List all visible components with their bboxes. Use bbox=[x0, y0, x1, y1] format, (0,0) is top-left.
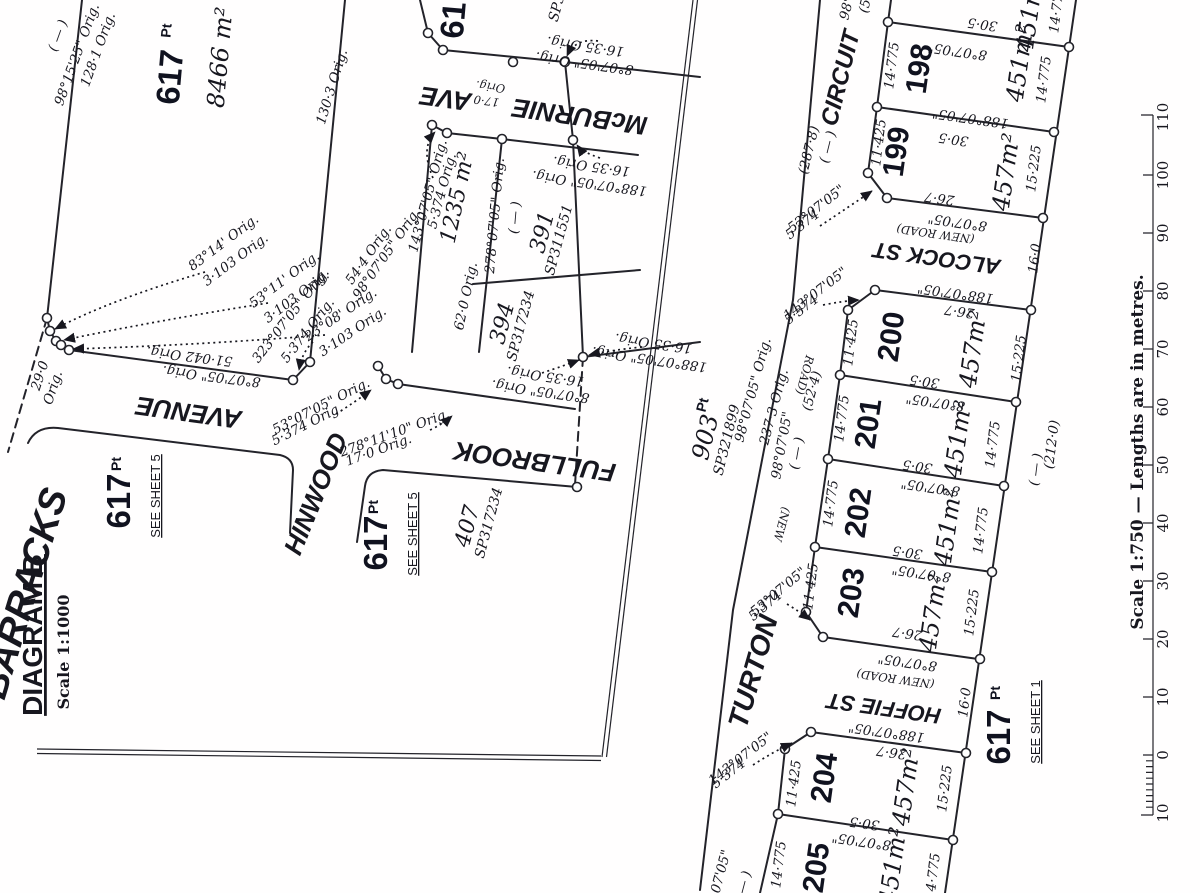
boundary-corner bbox=[976, 655, 985, 664]
width-30-5: 30·5 bbox=[966, 14, 998, 34]
lot-200-area: 457m² bbox=[954, 308, 993, 390]
scale-tick-10b: 10 bbox=[1154, 803, 1172, 822]
lot-203-side-east: 15·225 bbox=[961, 588, 983, 637]
width-30-5: 30·5 bbox=[908, 371, 940, 391]
boundary-corner bbox=[509, 58, 518, 67]
scale-bar-labels: Scale 1:750 — Lengths are in metres. 110… bbox=[1128, 103, 1172, 823]
lot-617-right-number: 617 bbox=[980, 709, 1017, 764]
dist-62-0: 62·0 Orig. bbox=[451, 261, 481, 332]
boundary-corner bbox=[824, 455, 833, 464]
leader-arrow bbox=[64, 303, 268, 340]
scale-tick-60: 60 bbox=[1154, 397, 1172, 416]
bearing-278-07-05-orig: 278°07'05" Orig. bbox=[482, 157, 508, 275]
lot-203-number: 203 bbox=[832, 566, 872, 620]
width-26-7: 26·7 bbox=[923, 188, 956, 208]
lot-200-number: 200 bbox=[872, 310, 912, 364]
boundary-corner bbox=[807, 728, 816, 737]
plan-number-fragment: SP3 bbox=[546, 0, 569, 24]
blank-dim: ( — ) bbox=[731, 869, 755, 893]
lot-202-area: 451m² bbox=[929, 486, 968, 568]
boundary-corner bbox=[46, 327, 55, 336]
lot-617-right-pt: Pt bbox=[987, 686, 1003, 700]
boundary-corner bbox=[443, 129, 452, 138]
boundary-corner bbox=[569, 136, 578, 145]
lot-200-side-east: 15·225 bbox=[1008, 334, 1030, 383]
lot-617a-pt: Pt bbox=[157, 23, 174, 39]
lot-205-number: 205 bbox=[797, 841, 837, 893]
boundary-corner bbox=[424, 29, 433, 38]
lot-903-pt: Pt bbox=[693, 396, 712, 414]
lot-617b-see-sheet: SEE SHEET 5 bbox=[148, 454, 163, 538]
width-30-5: 30·5 bbox=[937, 129, 969, 149]
scale-tick-50: 50 bbox=[1154, 455, 1172, 474]
scale-tick-20: 20 bbox=[1154, 629, 1172, 648]
boundary-corner bbox=[884, 18, 893, 27]
boundary-corner bbox=[836, 371, 845, 380]
lot-199-area: 457m² bbox=[987, 131, 1026, 213]
lot-204-side-east: 15·225 bbox=[934, 764, 956, 813]
boundary-corner bbox=[382, 375, 391, 384]
boundary-corner bbox=[289, 376, 298, 385]
blank-dim: ( — ) bbox=[506, 201, 525, 235]
boundary-corner bbox=[1050, 128, 1059, 137]
boundary-corner bbox=[844, 306, 853, 315]
lot-199-side-east: 15·225 bbox=[1023, 144, 1045, 193]
lot-198-number: 198 bbox=[900, 42, 940, 96]
lot-202-number: 202 bbox=[839, 486, 879, 540]
boundary-corner bbox=[428, 121, 437, 130]
lot-200-side-west: 11·425 bbox=[840, 318, 862, 367]
scale-tick-80: 80 bbox=[1154, 281, 1172, 300]
scale-tick-110: 110 bbox=[1154, 103, 1172, 132]
lot-205-area: 451m² bbox=[874, 825, 913, 893]
boundary-corner bbox=[949, 836, 958, 845]
diagram-b-labels: DIAGRAM B Scale 1:1000 BARRACKS 617 Pt 8… bbox=[0, 0, 708, 716]
lot-204-number: 204 bbox=[805, 750, 845, 804]
lot-204-side-west: 11·425 bbox=[783, 759, 805, 808]
lot-203-area: 457m² bbox=[914, 572, 953, 654]
street-circuit: CIRCUIT bbox=[816, 25, 866, 128]
scale-tick-100: 100 bbox=[1154, 161, 1172, 190]
boundary-corner bbox=[65, 346, 74, 355]
lot-201-side-east: 14·775 bbox=[982, 420, 1004, 469]
side-dim-fragment: 14·775 bbox=[1046, 0, 1068, 34]
leader-arrow bbox=[823, 300, 859, 305]
boundary-corner bbox=[579, 353, 588, 362]
boundary-corner bbox=[811, 543, 820, 552]
scale-bar: Scale 1:750 — Lengths are in metres. 110… bbox=[1128, 103, 1172, 823]
boundary-corner bbox=[871, 286, 880, 295]
lot-198-side-east: 14·775 bbox=[1033, 55, 1055, 104]
boundary-corner bbox=[1000, 482, 1009, 491]
street-avenue: AVENUE bbox=[133, 391, 244, 436]
boundary-corner bbox=[306, 358, 315, 367]
blank-dim: ( — ) bbox=[45, 18, 71, 54]
boundary-corner bbox=[819, 633, 828, 642]
boundary-corner bbox=[374, 362, 383, 371]
lot-617c-pt: Pt bbox=[365, 500, 381, 514]
boundary-corner bbox=[1027, 306, 1036, 315]
street-hoffie: HOFFIE ST bbox=[824, 688, 943, 729]
lot-201-number: 201 bbox=[849, 397, 889, 451]
boundary-corner bbox=[394, 380, 403, 389]
bearing-fragment: 98° bbox=[836, 0, 857, 22]
scale-tick-0: 0 bbox=[1154, 750, 1172, 760]
street-mcburnie: McBURNIE bbox=[510, 93, 649, 142]
boundary-corner bbox=[439, 46, 448, 55]
dist-212-0: (212·0) bbox=[1041, 419, 1063, 470]
boundary-corner bbox=[781, 745, 790, 754]
dist-130-3: 130·3 Orig. bbox=[313, 47, 351, 126]
boundary-corner bbox=[988, 568, 997, 577]
turton-new: (NEW bbox=[770, 505, 793, 543]
bearing-188-07-05: 188°07'05" bbox=[916, 280, 994, 307]
boundary-corner bbox=[883, 194, 892, 203]
lot-617c-see-sheet: SEE SHEET 5 bbox=[405, 492, 420, 576]
boundary-corner bbox=[774, 810, 783, 819]
street-fullbrook: FULLBROOK bbox=[450, 435, 618, 488]
scale-tick-90: 90 bbox=[1154, 223, 1172, 242]
lot-617-see-sheet-1: SEE SHEET 1 bbox=[1028, 680, 1043, 764]
lot-202-side-east: 14·775 bbox=[970, 506, 992, 555]
boundary-corner bbox=[864, 169, 873, 178]
boundary-corner bbox=[43, 314, 52, 323]
width-30-5: 30·5 bbox=[901, 456, 933, 476]
scale-tick-30: 30 bbox=[1154, 571, 1172, 590]
lot-617b-number: 617 bbox=[100, 473, 137, 528]
survey-plan-sheet: DIAGRAM B Scale 1:1000 BARRACKS 617 Pt 8… bbox=[0, 0, 1200, 893]
diagram-scale: Scale 1:1000 bbox=[54, 594, 73, 709]
leader-arrow bbox=[577, 145, 600, 158]
width-30-5: 30·5 bbox=[891, 542, 923, 562]
boundary-corner bbox=[962, 749, 971, 758]
lot-617b-pt: Pt bbox=[108, 457, 124, 471]
width-30-5: 30·5 bbox=[848, 813, 880, 833]
bearing-188-07-05: 188°07'05" bbox=[931, 105, 1009, 132]
street-mcburnie-ave: AVE bbox=[417, 80, 474, 117]
road-width-16-0: 16·0 bbox=[1025, 242, 1045, 274]
lot-617a-area: 8466 m² bbox=[202, 6, 239, 109]
leader-arrow bbox=[55, 272, 205, 329]
boundary-corner bbox=[1039, 214, 1048, 223]
boundary-corner bbox=[1065, 43, 1074, 52]
dim-fragment: (5 bbox=[856, 0, 875, 15]
plan-canvas: DIAGRAM B Scale 1:1000 BARRACKS 617 Pt 8… bbox=[0, 0, 1200, 893]
boundary-corner bbox=[498, 135, 507, 144]
scale-tick-40: 40 bbox=[1154, 513, 1172, 532]
boundary-corner bbox=[873, 103, 882, 112]
lot-205-side-east: 14·775 bbox=[922, 852, 944, 893]
scale-bar-caption: Scale 1:750 — Lengths are in metres. bbox=[1128, 274, 1148, 629]
lot-205-side-west: 14·775 bbox=[768, 840, 790, 889]
scale-tick-10: 10 bbox=[1154, 687, 1172, 706]
scale-tick-70: 70 bbox=[1154, 339, 1172, 358]
lot-617a-number: 617 bbox=[149, 48, 191, 106]
bearing-8-07-05: 8°07'05" bbox=[877, 650, 938, 674]
boundary-corner bbox=[1012, 398, 1021, 407]
street-alcock: ALCOCK ST bbox=[870, 237, 1003, 280]
lot-617c-number: 617 bbox=[357, 515, 394, 570]
bearing-98-07-05: 98°07'05" bbox=[702, 848, 735, 893]
lot-617-top-number: 617 bbox=[433, 0, 475, 40]
